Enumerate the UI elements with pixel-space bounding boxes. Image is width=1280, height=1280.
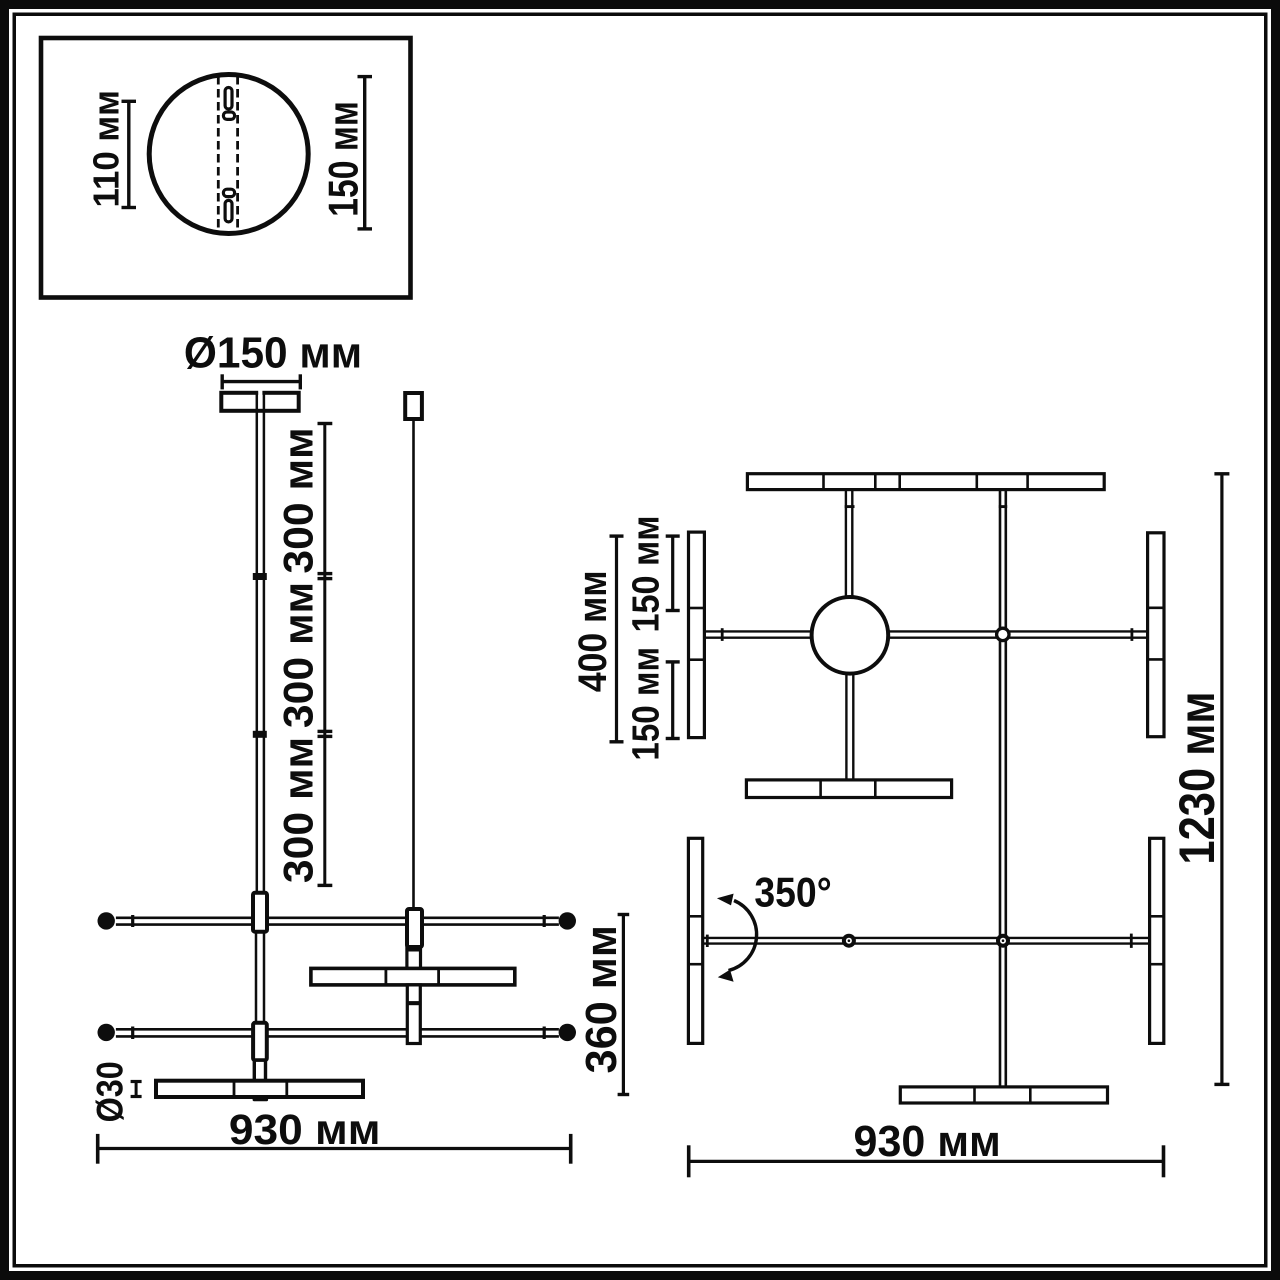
svg-text:350°: 350° bbox=[754, 870, 831, 916]
svg-text:300 мм: 300 мм bbox=[275, 737, 322, 883]
svg-text:300 мм: 300 мм bbox=[275, 427, 322, 573]
svg-text:150 мм: 150 мм bbox=[624, 515, 667, 632]
svg-text:150 мм: 150 мм bbox=[624, 647, 667, 761]
svg-text:400 мм: 400 мм bbox=[571, 570, 615, 692]
svg-text:150 мм: 150 мм bbox=[321, 101, 367, 217]
svg-text:360 мм: 360 мм bbox=[577, 925, 626, 1073]
svg-text:300 мм: 300 мм bbox=[275, 582, 322, 728]
svg-text:1230 мм: 1230 мм bbox=[1169, 691, 1224, 864]
svg-text:930 мм: 930 мм bbox=[854, 1117, 1001, 1166]
svg-text:Ø150 мм: Ø150 мм bbox=[184, 329, 362, 378]
svg-text:110 мм: 110 мм bbox=[86, 90, 127, 207]
svg-text:930 мм: 930 мм bbox=[229, 1105, 381, 1153]
svg-text:Ø30: Ø30 bbox=[91, 1061, 131, 1122]
